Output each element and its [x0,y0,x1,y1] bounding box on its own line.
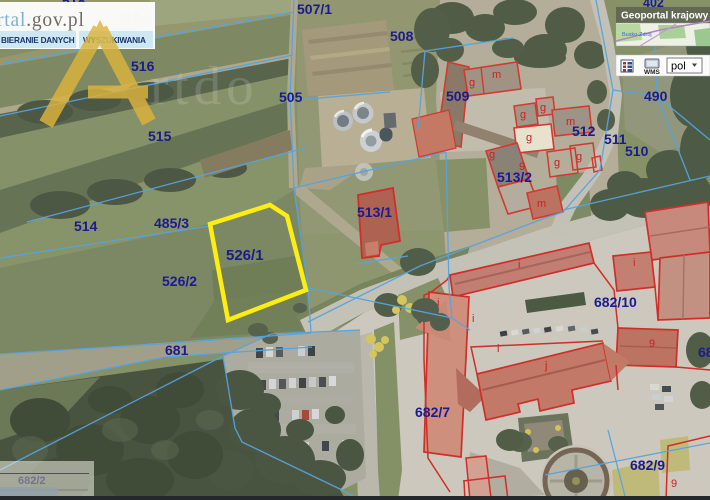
svg-text:515: 515 [148,128,172,144]
svg-text:509: 509 [446,88,470,104]
svg-text:i: i [633,257,635,269]
svg-text:m: m [492,69,501,81]
svg-text:i: i [437,297,439,309]
svg-text:WMS: WMS [644,69,661,76]
svg-text:BIERANIE DANYCH: BIERANIE DANYCH [1,36,75,45]
svg-text:m: m [537,198,546,210]
svg-text:508: 508 [390,28,414,44]
svg-text:Busko-Zdrój: Busko-Zdrój [622,32,652,38]
svg-text:g: g [489,149,495,161]
svg-text:pol: pol [671,61,686,73]
svg-text:g: g [576,151,582,163]
svg-text:507/1: 507/1 [297,1,332,17]
svg-text:9: 9 [649,338,655,350]
svg-text:m: m [566,116,575,128]
svg-text:68: 68 [698,344,710,360]
svg-text:9: 9 [519,161,525,173]
svg-text:512: 512 [572,123,596,139]
svg-text:i: i [518,259,520,271]
svg-text:510: 510 [625,143,649,159]
svg-text:505: 505 [279,89,303,105]
svg-text:i: i [497,343,499,355]
svg-text:526/2: 526/2 [162,273,197,289]
svg-text:682/9: 682/9 [630,457,665,473]
svg-text:g: g [554,157,560,169]
svg-text:Geoportal krajowy: Geoportal krajowy [621,11,709,22]
svg-text:526/1: 526/1 [226,247,264,264]
svg-text:rtdo: rtdo [150,55,259,116]
svg-text:511: 511 [604,131,627,147]
svg-text:513/2: 513/2 [497,169,532,185]
svg-text:g: g [526,132,532,144]
svg-text:i: i [472,313,474,325]
svg-text:513/1: 513/1 [357,204,392,220]
svg-text:9: 9 [671,478,677,490]
svg-text:485/3: 485/3 [154,215,189,231]
svg-text:j: j [544,360,547,372]
svg-text:g: g [540,102,546,114]
svg-text:490: 490 [644,88,668,104]
svg-text:682/7: 682/7 [415,404,450,420]
svg-text:g: g [469,77,475,89]
svg-text:682/2: 682/2 [18,475,46,487]
svg-text:rtal.gov.pl: rtal.gov.pl [0,10,85,31]
svg-text:g: g [520,109,526,121]
svg-text:681: 681 [165,342,189,358]
svg-text:682/10: 682/10 [594,294,637,310]
svg-text:514: 514 [74,218,98,234]
